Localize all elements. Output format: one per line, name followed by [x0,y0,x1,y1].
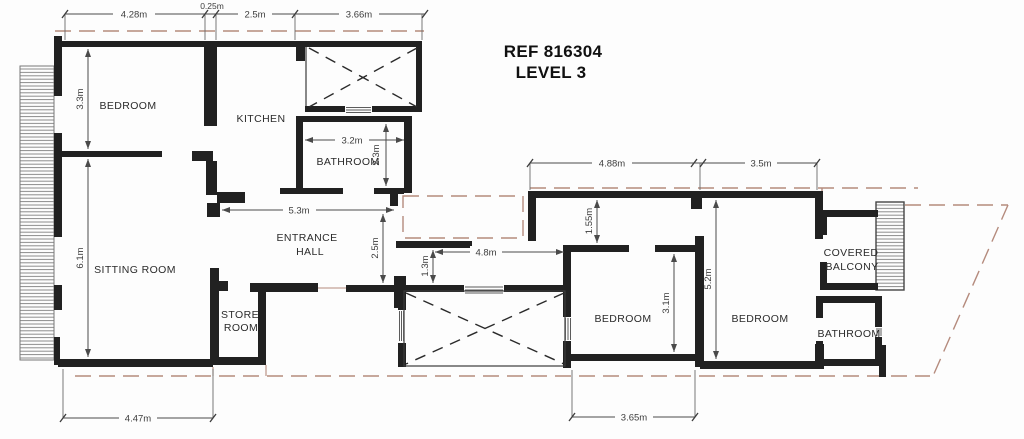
room-label-kitchen: KITCHEN [237,113,286,125]
void-shafts [306,47,565,366]
room-label-covered-balcony-1: COVERED [824,247,879,259]
dim-right-offset: 1.55m [584,208,595,234]
room-label-covered-balcony-2: BALCONY [826,261,879,273]
left-terrace-railing [20,66,54,360]
plan-level: LEVEL 3 [516,63,587,82]
dim-top-d: 3.66m [346,10,372,21]
room-label-bedroom-right: BEDROOM [731,313,788,325]
dim-courtyard-step: 1.3m [420,255,431,276]
dim-bathroom-left-width: 3.2m [341,136,362,147]
dim-top-c: 2.5m [244,10,265,21]
room-label-bathroom-left: BATHROOM [316,156,379,168]
plan-reference: REF 816304 [504,42,603,61]
room-label-bathroom-right: BATHROOM [817,328,880,340]
covered-balcony-railing [876,202,904,290]
dim-top-b: 0.25m [200,1,224,11]
room-label-sitting-room: SITTING ROOM [94,264,176,276]
dim-corridor-width: 4.8m [475,248,496,259]
floor-plan: 4.28m 0.25m 2.5m 3.66m 4.88m 3.5m 3.2m 5… [0,0,1024,439]
room-label-entrance-hall-2: HALL [296,246,324,258]
room-label-bedroom-mid: BEDROOM [594,313,651,325]
walls [54,36,886,377]
dim-top-a: 4.28m [121,10,147,21]
dim-bedroom-mid-depth: 3.1m [661,292,672,313]
dim-entrance-hall-width: 5.3m [288,206,309,217]
dim-right-top-a: 4.88m [599,159,625,170]
window-hatches [346,108,881,342]
dim-bedroom-right-depth: 5.2m [703,268,714,289]
dim-bottom-mid-width: 3.65m [621,413,647,424]
room-label-store-room-1: STORE [221,309,259,321]
dim-bedroom-left-depth: 3.3m [75,88,86,109]
dim-sitting-room-depth: 6.1m [75,247,86,268]
dim-bottom-left-width: 4.47m [125,414,151,425]
room-label-store-room-2: ROOM [224,322,258,334]
room-label-entrance-hall-1: ENTRANCE [277,232,338,244]
room-label-bedroom-left: BEDROOM [99,100,156,112]
dim-courtyard-offset: 2.5m [370,237,381,258]
floor-plan-drawing: 4.28m 0.25m 2.5m 3.66m 4.88m 3.5m 3.2m 5… [0,0,1024,439]
dim-right-top-b: 3.5m [750,159,771,170]
title-block: REF 816304 LEVEL 3 [504,42,603,82]
